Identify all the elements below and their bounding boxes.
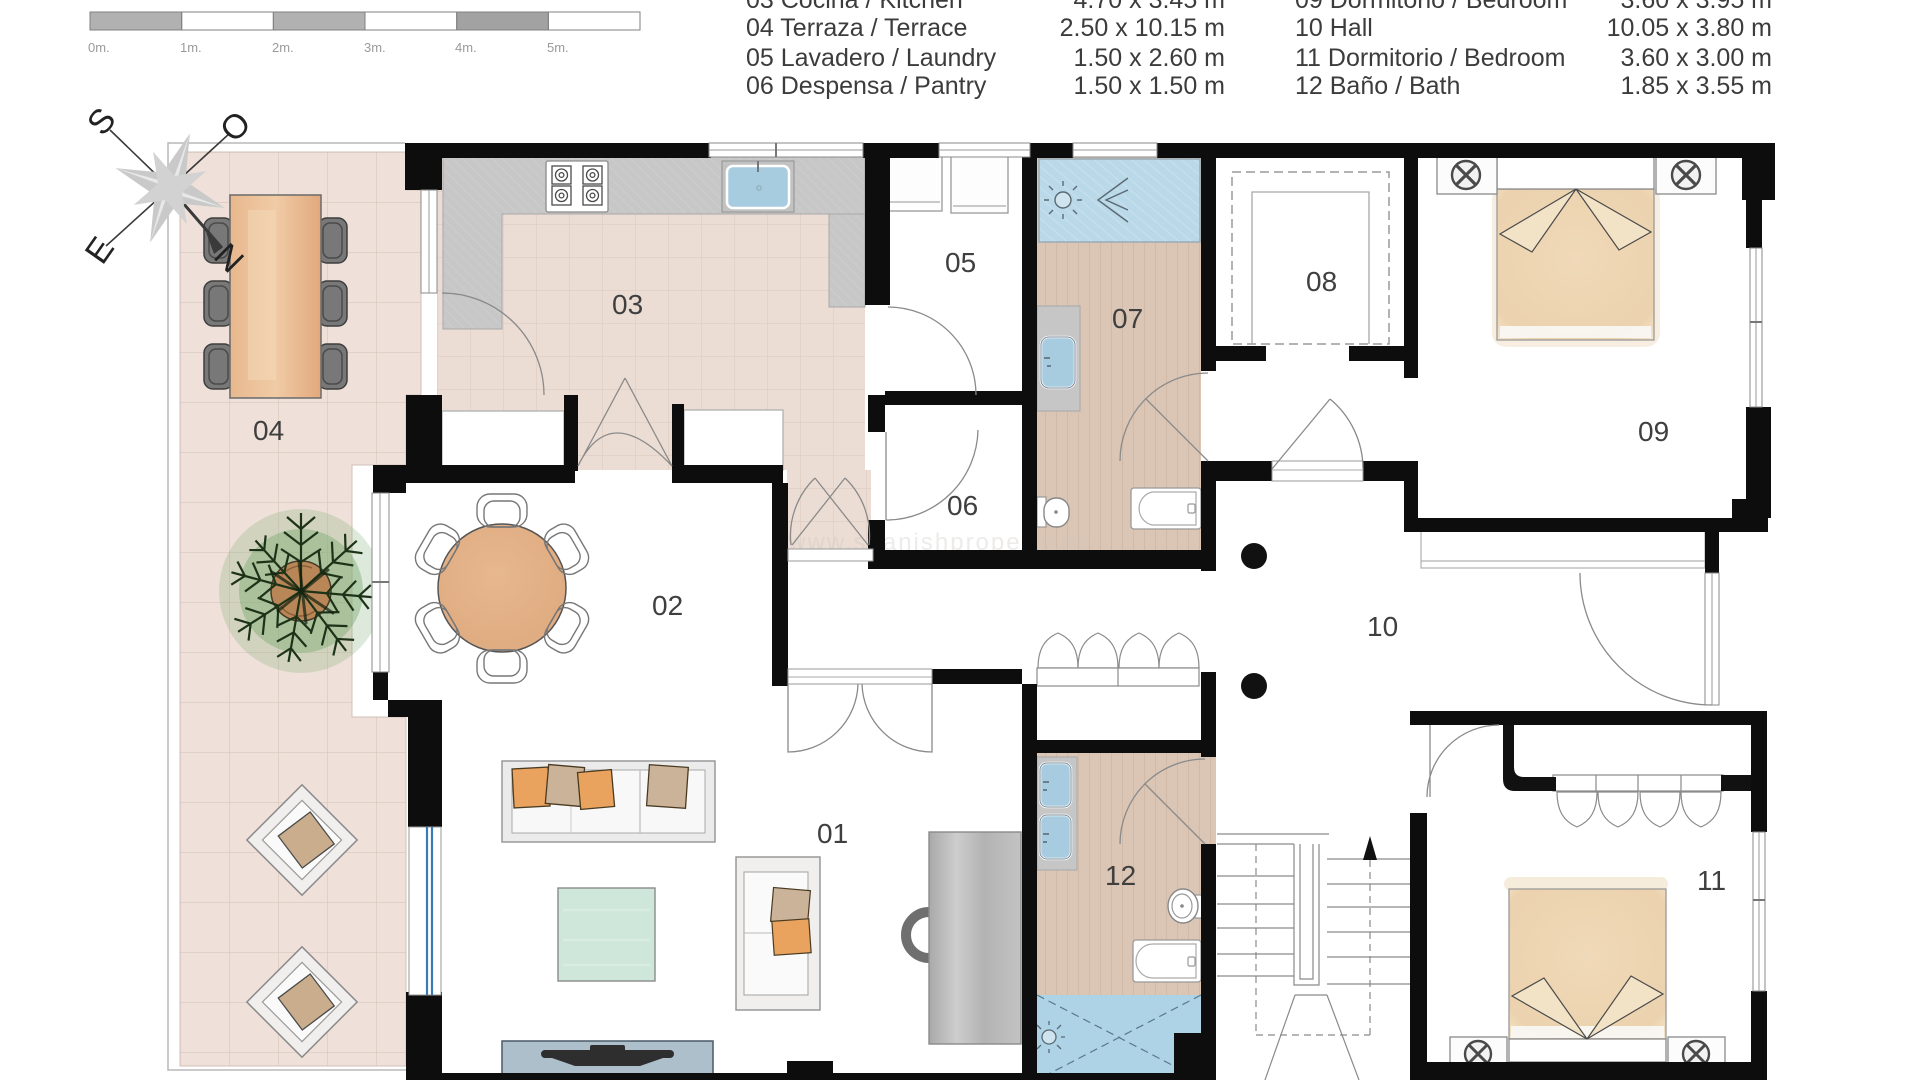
svg-text:1.50 x 2.60 m: 1.50 x 2.60 m — [1074, 44, 1225, 72]
svg-text:05 Lavadero / Laundry: 05 Lavadero / Laundry — [746, 44, 997, 72]
svg-text:10.05 x 3.80 m: 10.05 x 3.80 m — [1607, 14, 1772, 42]
svg-text:3.60 x 3.95 m: 3.60 x 3.95 m — [1621, 0, 1772, 14]
svg-text:03 Cocina / Kitchen: 03 Cocina / Kitchen — [746, 0, 963, 14]
svg-text:5m.: 5m. — [547, 40, 569, 55]
svg-text:1.50 x 1.50 m: 1.50 x 1.50 m — [1074, 72, 1225, 100]
svg-text:1.85 x 3.55 m: 1.85 x 3.55 m — [1621, 72, 1772, 100]
svg-text:4m.: 4m. — [455, 40, 477, 55]
svg-text:01: 01 — [817, 818, 848, 849]
svg-text:05: 05 — [945, 247, 976, 278]
svg-text:2m.: 2m. — [272, 40, 294, 55]
svg-text:10 Hall: 10 Hall — [1295, 14, 1373, 42]
svg-text:06 Despensa / Pantry: 06 Despensa / Pantry — [746, 72, 987, 100]
svg-text:1m.: 1m. — [180, 40, 202, 55]
svg-text:07: 07 — [1112, 303, 1143, 334]
svg-text:09 Dormitorio / Bedroom: 09 Dormitorio / Bedroom — [1295, 0, 1567, 14]
svg-text:2.50 x 10.15 m: 2.50 x 10.15 m — [1060, 14, 1225, 42]
svg-text:02: 02 — [652, 590, 683, 621]
svg-text:06: 06 — [947, 490, 978, 521]
svg-text:3.60 x 3.00 m: 3.60 x 3.00 m — [1621, 44, 1772, 72]
svg-text:11 Dormitorio / Bedroom: 11 Dormitorio / Bedroom — [1295, 44, 1565, 72]
svg-text:09: 09 — [1638, 416, 1669, 447]
svg-text:4.70 x 3.45 m: 4.70 x 3.45 m — [1074, 0, 1225, 14]
svg-text:04: 04 — [253, 415, 284, 446]
svg-text:04 Terraza / Terrace: 04 Terraza / Terrace — [746, 14, 967, 42]
svg-text:3m.: 3m. — [364, 40, 386, 55]
svg-text:03: 03 — [612, 289, 643, 320]
svg-text:12 Baño / Bath: 12 Baño / Bath — [1295, 72, 1460, 100]
svg-text:08: 08 — [1306, 266, 1337, 297]
svg-text:0m.: 0m. — [88, 40, 110, 55]
svg-text:12: 12 — [1105, 860, 1136, 891]
svg-text:11: 11 — [1697, 865, 1726, 896]
svg-text:10: 10 — [1367, 611, 1398, 642]
